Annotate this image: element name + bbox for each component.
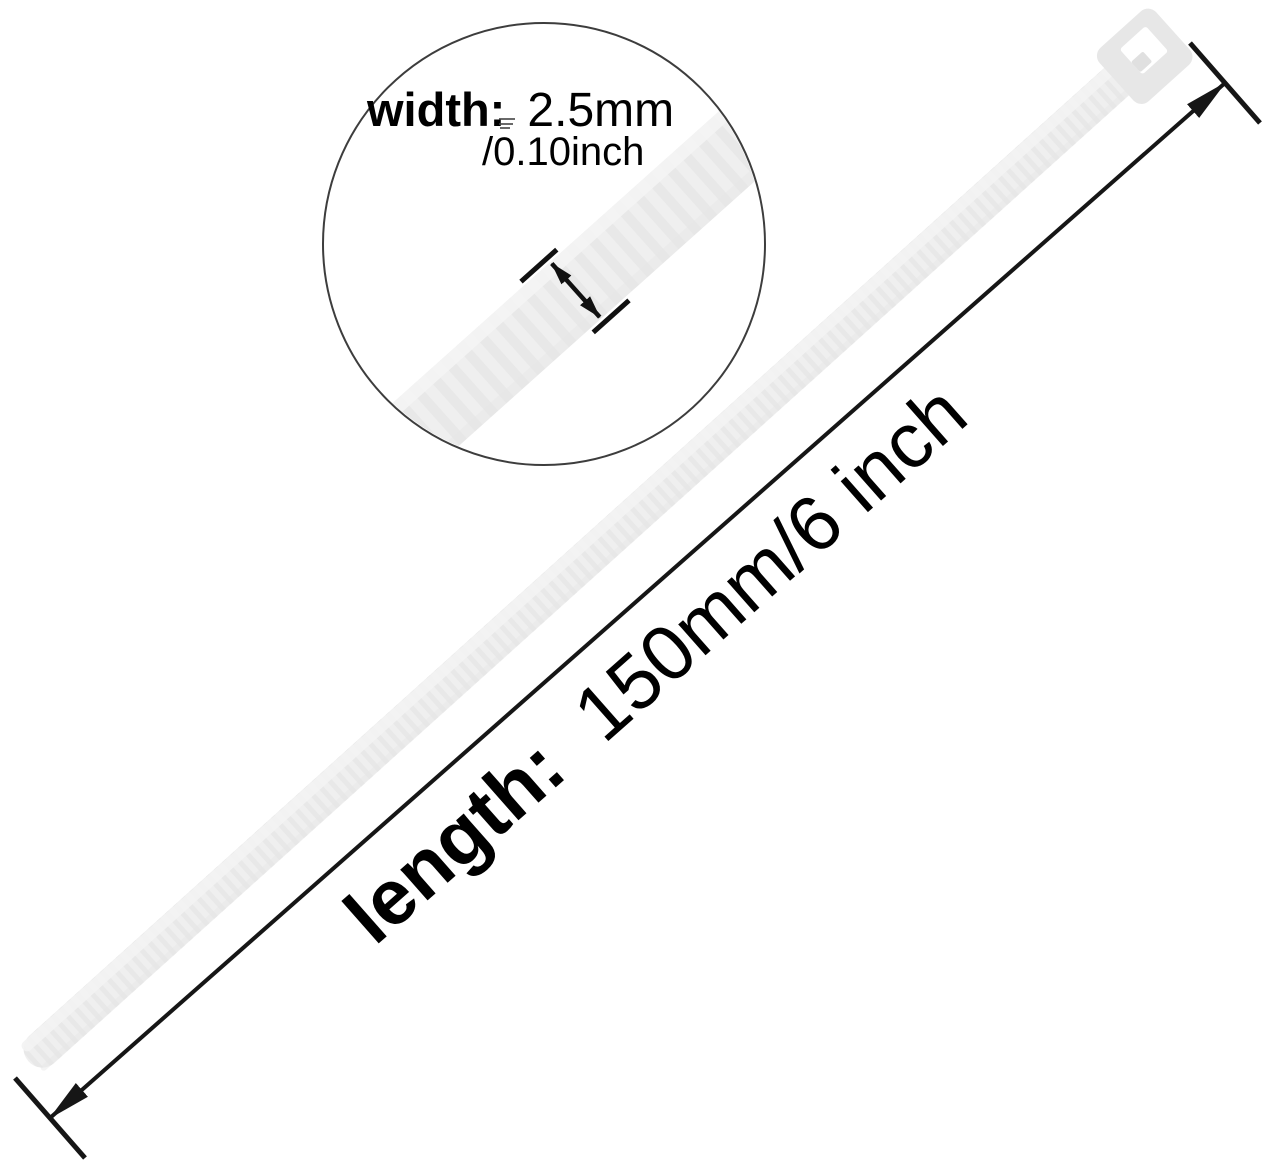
length-tick-head xyxy=(1190,43,1260,123)
width-label: width: xyxy=(366,83,505,136)
length-tick-tail xyxy=(15,1078,85,1158)
length-text: length: 150mm/6 inch xyxy=(328,368,983,960)
product-image: width: 2.5mm /0.10inch length: 150mm/6 i… xyxy=(0,0,1270,1165)
dimension-diagram: width: 2.5mm /0.10inch length: 150mm/6 i… xyxy=(0,0,1270,1165)
width-alt-value: /0.10inch xyxy=(482,130,644,174)
